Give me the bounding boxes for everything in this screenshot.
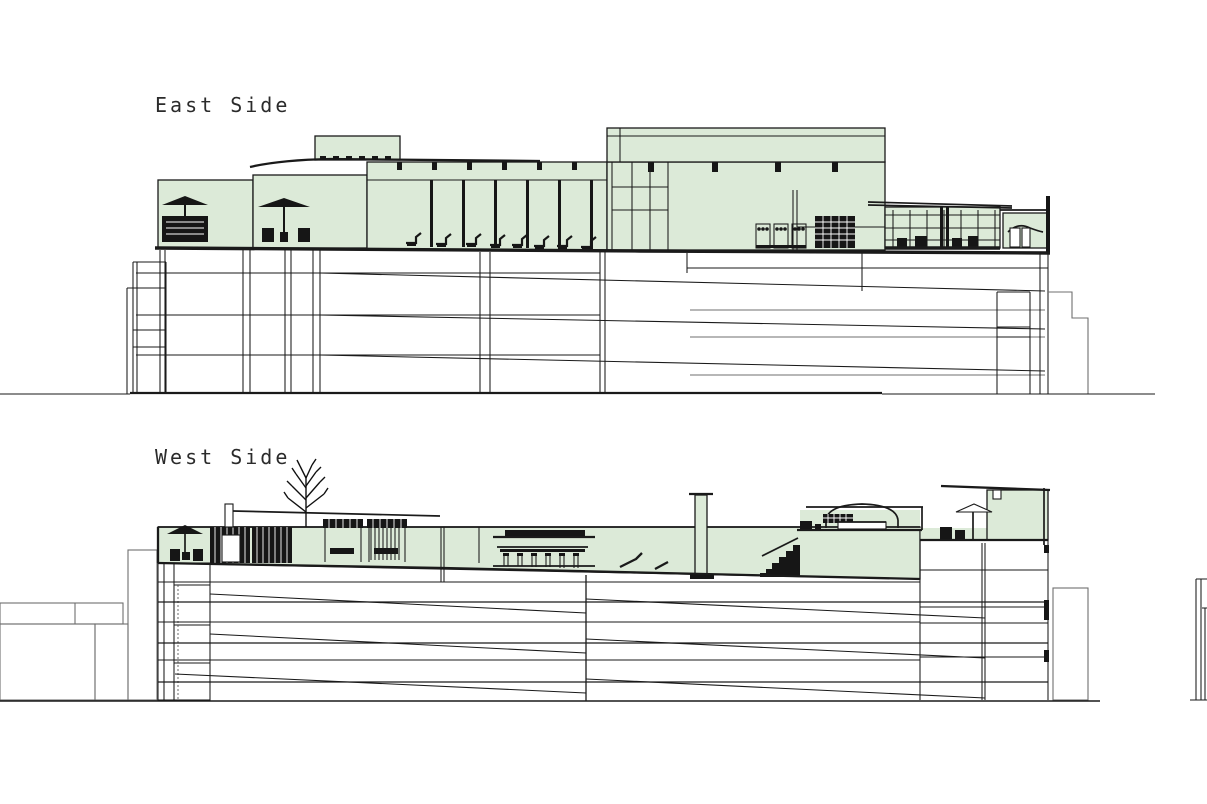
west-stair-core [158, 563, 210, 700]
west-side-label: West Side [155, 445, 290, 469]
east-side-label: East Side [155, 93, 290, 117]
door [222, 535, 240, 562]
west-elevation: West Side [0, 445, 1207, 701]
east-roof-monitor [607, 128, 885, 162]
cabana-bed [162, 216, 208, 242]
chair [940, 527, 952, 540]
flue [225, 504, 233, 527]
east-amenity-level [155, 128, 1050, 253]
east-parking-structure [127, 250, 1088, 394]
east-background-steps [1048, 292, 1088, 394]
chair [170, 549, 180, 561]
west-parking-structure [158, 490, 1088, 701]
west-background-blocks [0, 550, 157, 700]
storage-rack [815, 216, 855, 248]
tree-icon [284, 459, 328, 527]
chair [262, 228, 274, 242]
chair [955, 530, 965, 540]
west-right-fragment [1190, 579, 1207, 700]
east-ground-line [0, 393, 1155, 394]
elevation-canvas: East Side [0, 0, 1207, 804]
chair [298, 228, 310, 242]
chair [193, 549, 203, 561]
west-background-block [1053, 588, 1088, 700]
table [280, 232, 288, 242]
drawing-sheet: East Side [0, 0, 1207, 804]
west-amenity-level [158, 459, 1050, 662]
east-elevation: East Side [0, 93, 1155, 394]
table [182, 552, 190, 560]
